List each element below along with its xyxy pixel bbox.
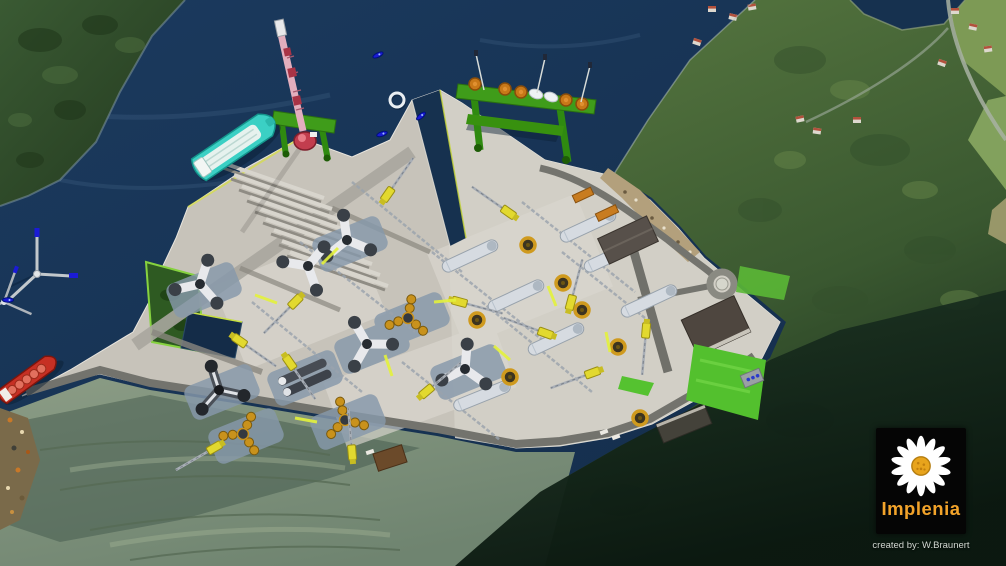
aerial-render: Implenia created by: W.Braunert [0, 0, 1006, 566]
scene-svg [0, 0, 1006, 566]
implenia-logo: Implenia [876, 428, 966, 534]
daisy-flower-icon [890, 435, 952, 497]
attribution-text: created by: W.Braunert [841, 540, 1001, 551]
implenia-wordmark: Implenia [876, 498, 966, 520]
